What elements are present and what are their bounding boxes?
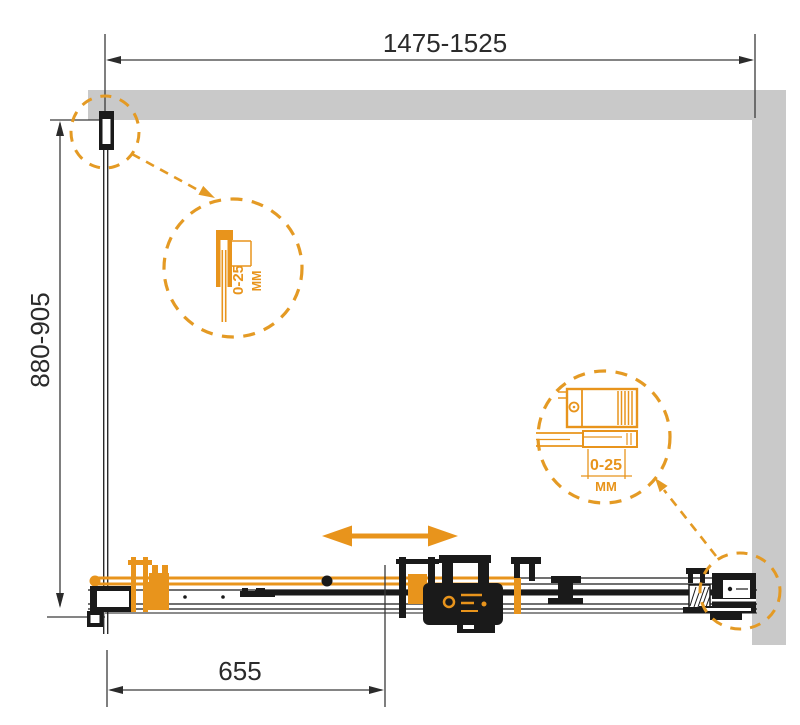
detail-wall-bracket: 0-25 ММ (536, 371, 670, 503)
adjustment-range-label: 0-25 (230, 265, 247, 295)
arrow-up-icon (56, 121, 64, 136)
height-dimension-label: 880-905 (25, 292, 55, 387)
double-arrow-left-icon (322, 526, 352, 547)
carriage-base (147, 588, 169, 610)
callout-connector (664, 490, 716, 556)
top-wall-profile-slot (103, 119, 111, 144)
hanger-leg (688, 574, 693, 583)
adjustment-range-label: 0-25 (590, 457, 622, 474)
top-clip-leg (529, 564, 535, 581)
bottom-wall-profile-slot (97, 591, 129, 607)
profile-wall (216, 240, 221, 287)
callout-arrow-icon (655, 478, 668, 492)
diagram-canvas: 1475-1525 880-905 (0, 0, 800, 725)
arrow-down-icon (56, 593, 64, 608)
top-clip-leg (442, 563, 453, 586)
orange-rail-end-post (514, 578, 521, 614)
screw-dot (183, 595, 187, 599)
callout-arrow-icon (198, 186, 215, 198)
rail-end-cap (90, 576, 101, 587)
carriage-prong (152, 565, 158, 573)
fixed-glass-panel (99, 111, 114, 634)
carriage-prong (162, 565, 168, 573)
door-width-label: 655 (218, 656, 261, 686)
arrow-right-icon (739, 56, 754, 64)
bracket-gap (712, 599, 756, 602)
bottom-tab-slot (463, 625, 474, 629)
arrow-left-icon (108, 686, 123, 694)
slide-direction-arrow (322, 526, 458, 547)
width-dimension-label: 1475-1525 (383, 28, 507, 58)
adjustment-unit-label: ММ (595, 479, 617, 494)
hanger-body (558, 583, 573, 599)
door-glass-edge (255, 591, 755, 596)
arrow-left-icon (106, 56, 121, 64)
bottom-tab (457, 622, 495, 633)
top-clip-bar (439, 555, 491, 563)
callout-connector (132, 154, 198, 190)
arrow-right-icon (369, 686, 384, 694)
arrow-shaft (350, 534, 430, 539)
screw-center-dot (573, 406, 576, 409)
hanger-leg (700, 574, 705, 583)
door-clip (240, 588, 275, 597)
detail-links (71, 96, 780, 629)
adjustment-unit-label: ММ (250, 271, 264, 292)
clip-body (240, 591, 275, 597)
hanger-foot (548, 598, 583, 604)
bracket-screw (728, 587, 732, 591)
detail-wall-profile: 0-25 ММ (164, 199, 302, 337)
top-clip-bar (511, 557, 541, 564)
profile-foot-slot (91, 615, 100, 623)
profile-cap (216, 230, 233, 240)
height-dimension: 880-905 (25, 120, 105, 617)
shower-enclosure-diagram: 1475-1525 880-905 (0, 0, 800, 725)
carriage-bracket (147, 582, 169, 588)
left-roller-carriage (128, 557, 169, 612)
top-wall (88, 90, 786, 120)
screw-dot (221, 595, 225, 599)
housing-detail-dot (482, 602, 487, 607)
carriage-post (131, 557, 136, 612)
right-wall (752, 90, 786, 645)
center-roller-carriage (396, 555, 541, 633)
top-clip-leg (478, 563, 489, 586)
rail-knob (322, 576, 333, 587)
hanger-flange (551, 576, 581, 583)
bottom-track-assembly (87, 555, 757, 633)
carriage-post (399, 557, 406, 618)
carriage-bracket (149, 573, 169, 582)
double-arrow-right-icon (428, 526, 458, 547)
bracket-bar-slot (704, 608, 751, 611)
